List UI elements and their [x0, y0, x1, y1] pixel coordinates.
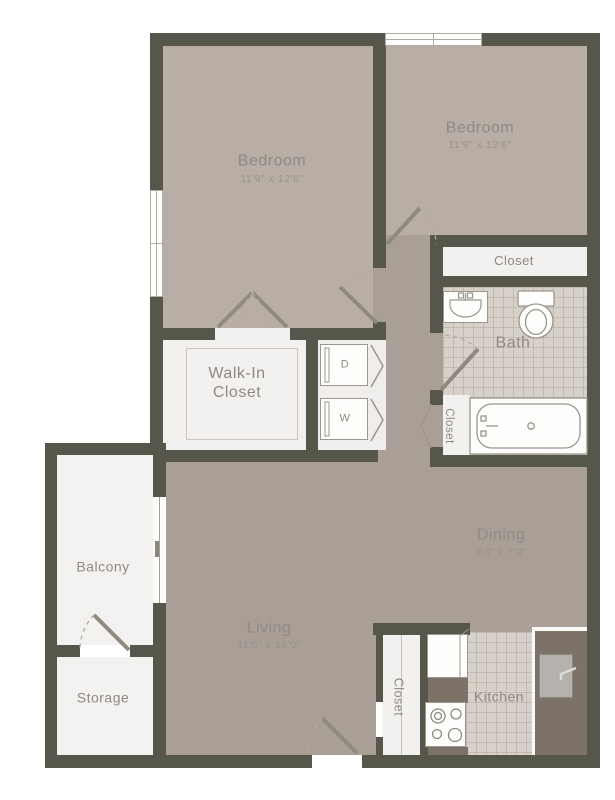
dryer-label: D [341, 358, 349, 371]
kitchen-label: Kitchen [474, 689, 524, 706]
walk-in-closet-label: Walk-In Closet [191, 364, 283, 402]
storage-label: Storage [77, 690, 130, 707]
linen-closet-door [421, 404, 431, 448]
refrigerator-door-line [460, 629, 469, 677]
bath-label: Bath [496, 333, 531, 352]
washer-dryer-detail [325, 348, 329, 436]
dining-label: Dining [477, 525, 525, 544]
bedroom-right-label: Bedroom [446, 118, 514, 137]
balcony-label: Balcony [76, 559, 129, 576]
bath-sink [450, 293, 481, 317]
balcony-storage-door [80, 615, 129, 650]
bedroom-right-dims: 11'9" x 12'6" [448, 139, 511, 151]
toilet [518, 291, 554, 338]
living-label: Living [247, 618, 292, 637]
bath-door [441, 335, 478, 390]
entry-door [308, 718, 357, 753]
washer-label: W [340, 412, 351, 425]
french-door-arcs [239, 293, 266, 327]
hall-closet-label: Closet [391, 678, 406, 716]
bedroom-left-dims: 11'9" x 12'6" [240, 173, 303, 185]
stove-burners [431, 709, 462, 742]
laundry-bifold-doors [371, 345, 383, 441]
dining-dims: 9'4" x 7'0" [475, 546, 526, 558]
bedroom-left-label: Bedroom [238, 151, 306, 170]
linen-closet-label: Closet [441, 408, 455, 444]
doors-and-fixtures-overlay [0, 0, 615, 800]
kitchen-faucet [561, 668, 576, 680]
bedroom-left-door [340, 271, 377, 323]
french-doors [218, 293, 287, 327]
bathtub [470, 398, 587, 454]
living-dims: 11'0" x 16'0" [237, 639, 300, 651]
closet-top-label: Closet [494, 253, 534, 269]
floor-plan: Bedroom 11'9" x 12'6" Bedroom 11'9" x 12… [0, 0, 615, 800]
bedroom-right-door [387, 208, 436, 244]
